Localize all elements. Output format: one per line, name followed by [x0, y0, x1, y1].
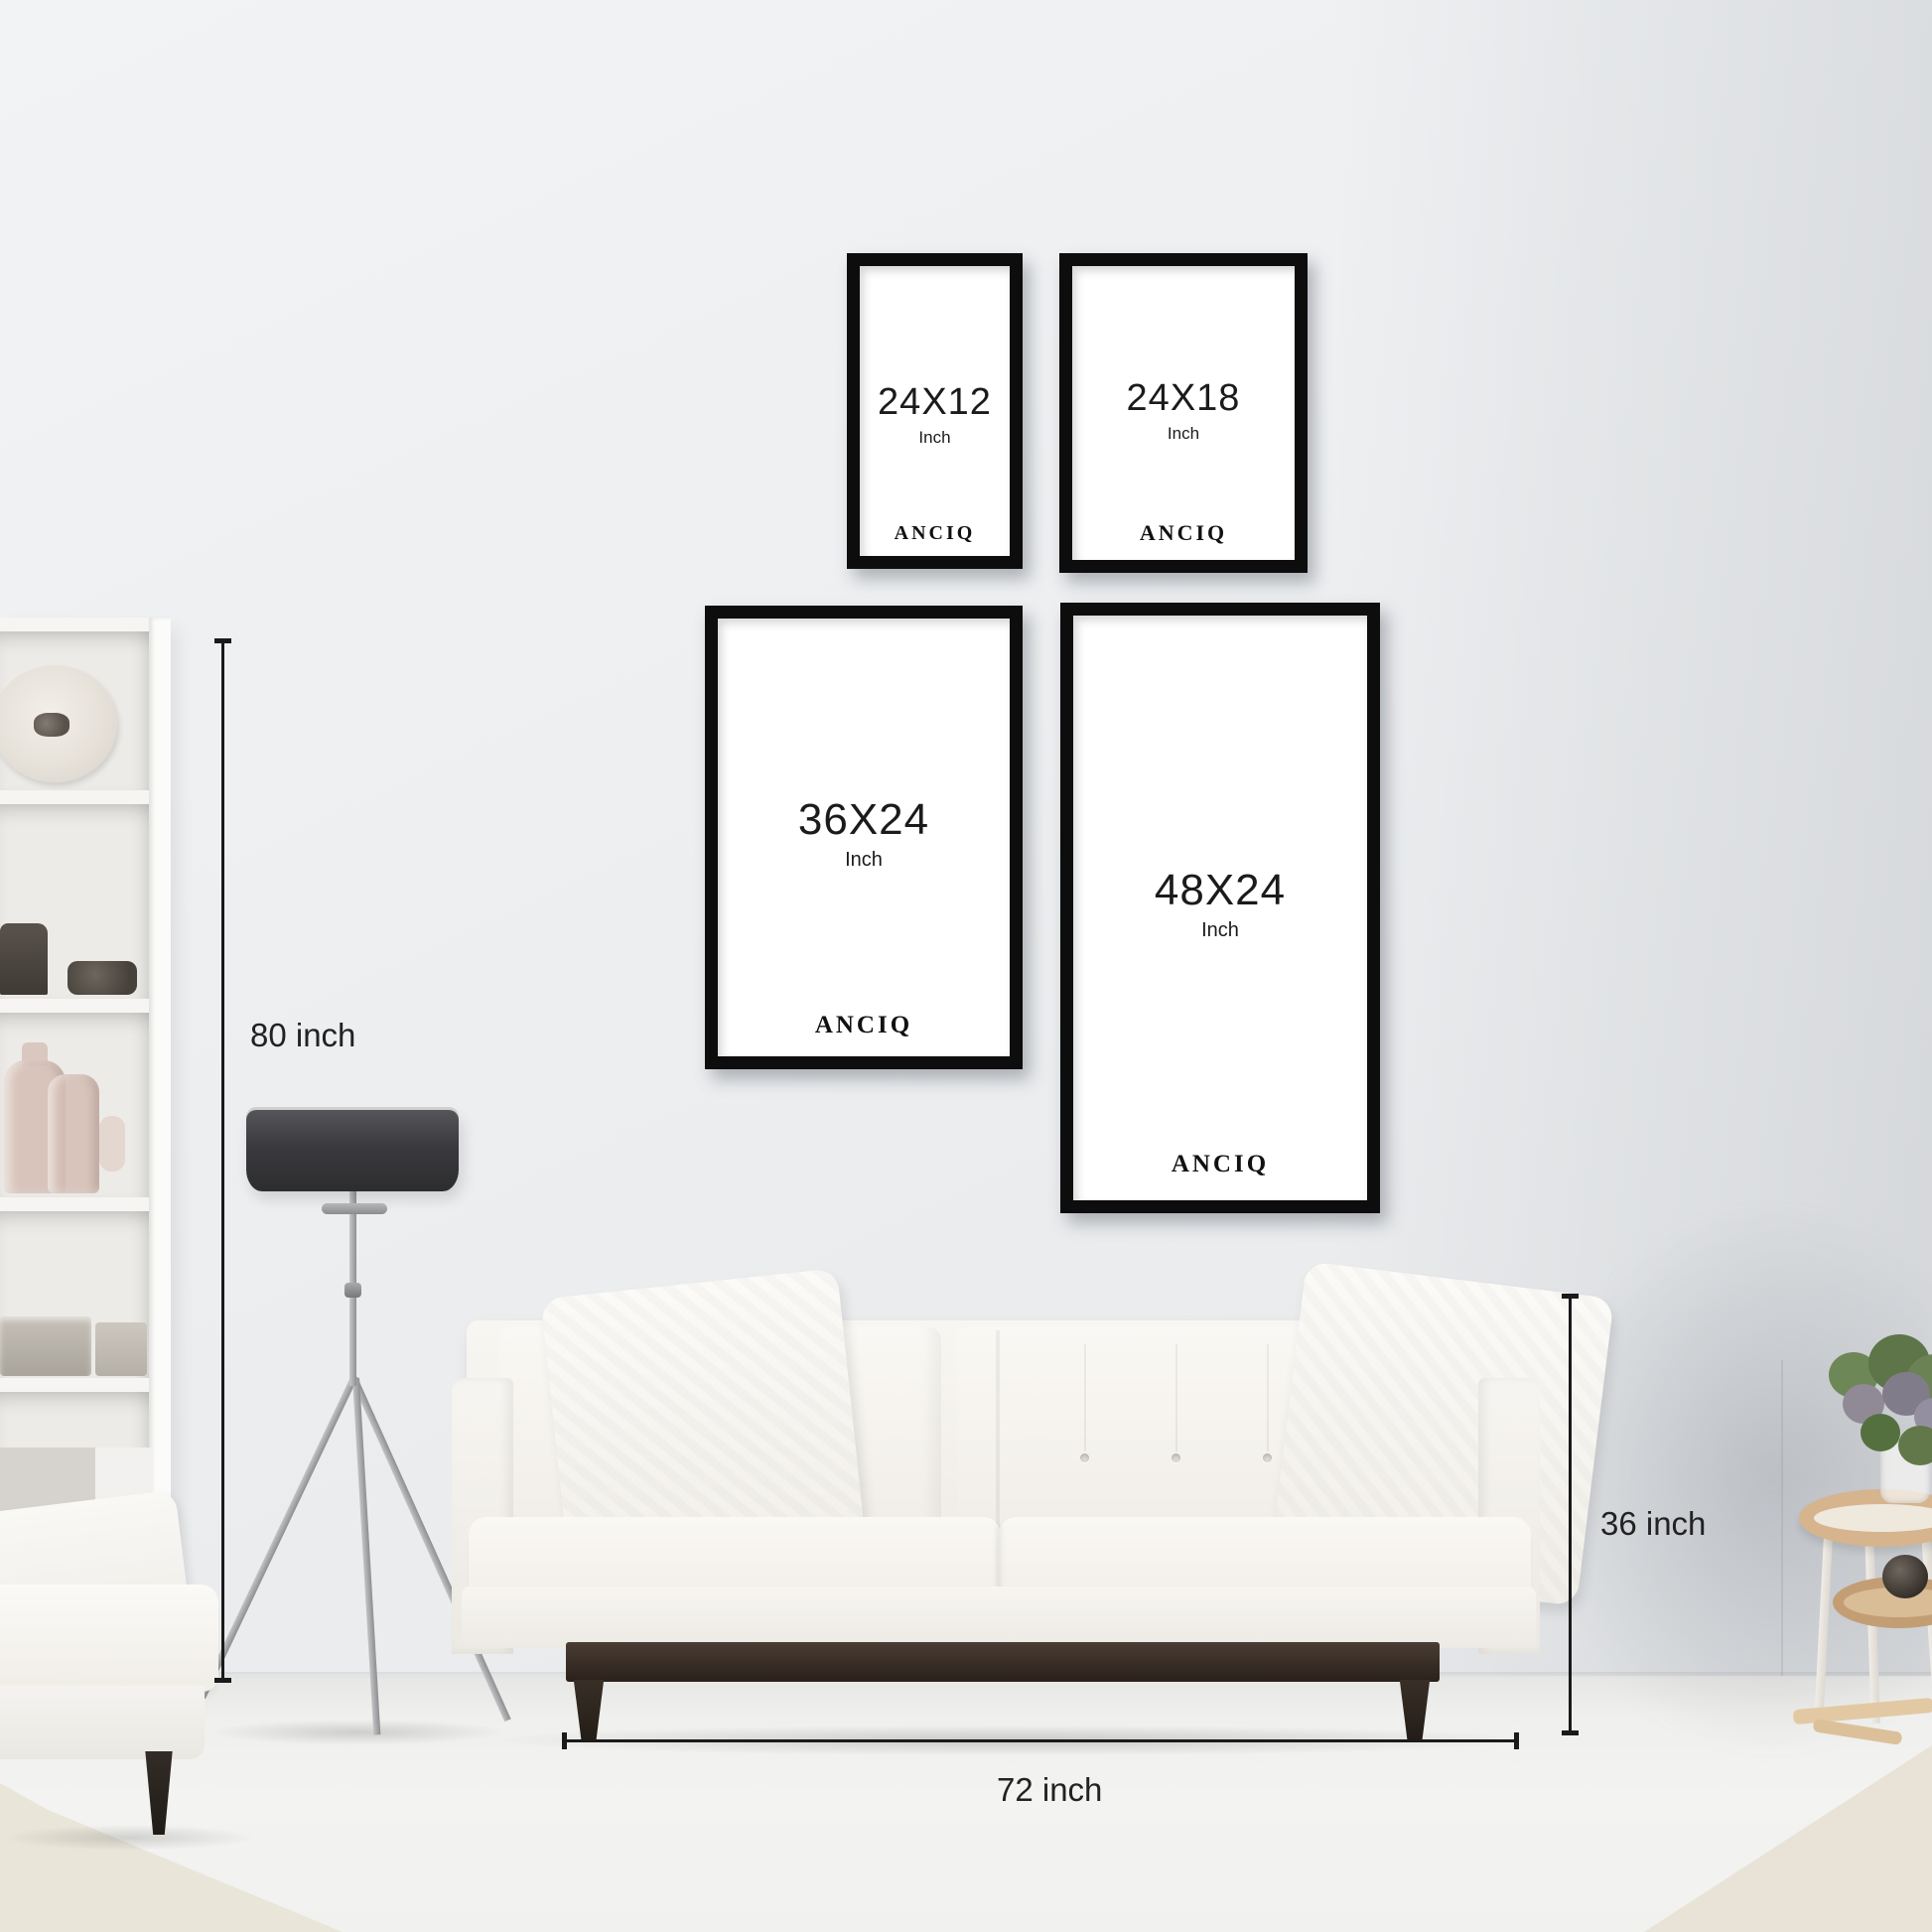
- measure-cap: [562, 1732, 567, 1749]
- bookshelf-compartment-1: [0, 631, 149, 790]
- brand-logo: ANCIQ: [1140, 520, 1227, 546]
- lamp-shade: [246, 1110, 459, 1191]
- measure-cap: [214, 638, 231, 643]
- measure-label-sofa-width: 72 inch: [997, 1771, 1102, 1809]
- frame-size-label: 48X24: [1155, 869, 1286, 912]
- sofa-front-rail: [462, 1587, 1536, 1648]
- measure-cap: [1514, 1732, 1519, 1749]
- brand-logo: ANCIQ: [895, 522, 976, 545]
- plant-leaf: [1861, 1414, 1900, 1451]
- dark-figurine: [0, 923, 48, 995]
- cushion-pleat: [1084, 1344, 1086, 1451]
- frame-size-label: 24X12: [878, 383, 992, 421]
- bookshelf-compartment-3: [0, 1013, 149, 1197]
- stone-cube: [95, 1322, 147, 1376]
- armchair-seat: [0, 1585, 218, 1692]
- decorative-sphere: [1882, 1555, 1928, 1598]
- frame-unit-label: Inch: [1201, 919, 1239, 942]
- small-figurines: [68, 961, 137, 995]
- plate-ornament: [34, 713, 69, 737]
- sofa-back-seam: [996, 1330, 1000, 1549]
- measure-line: [1569, 1296, 1572, 1732]
- tufting-button: [1080, 1453, 1089, 1462]
- frame-unit-label: Inch: [1168, 424, 1199, 444]
- measure-cap: [214, 1678, 231, 1683]
- sofa-wood-base: [566, 1642, 1440, 1682]
- measure-label-sofa-height: 36 inch: [1600, 1505, 1706, 1543]
- measure-cap: [1562, 1294, 1579, 1299]
- lamp-crossbar: [322, 1203, 387, 1214]
- brand-logo: ANCIQ: [1172, 1151, 1269, 1178]
- measure-cap: [1562, 1730, 1579, 1735]
- frame-48x24: 48X24 Inch ANCIQ: [1060, 603, 1380, 1213]
- frame-24x18: 24X18 Inch ANCIQ: [1059, 253, 1308, 573]
- tufting-button: [1263, 1453, 1272, 1462]
- lamp-knob: [345, 1283, 361, 1298]
- tufting-button: [1172, 1453, 1180, 1462]
- glass-bottle: [48, 1074, 99, 1193]
- measure-label-wall-height: 80 inch: [250, 1017, 355, 1054]
- frame-unit-label: Inch: [918, 428, 950, 448]
- frame-24x12: 24X12 Inch ANCIQ: [847, 253, 1023, 569]
- cushion-pleat: [1175, 1344, 1177, 1451]
- measure-line: [564, 1739, 1517, 1742]
- decorative-plate: [0, 665, 117, 782]
- cushion-pleat: [1267, 1344, 1269, 1451]
- storage-box: [0, 1316, 91, 1376]
- bookshelf-compartment-4: [0, 1211, 149, 1378]
- measure-line: [221, 640, 224, 1681]
- armchair-floor-shadow: [0, 1825, 258, 1851]
- frame-36x24: 36X24 Inch ANCIQ: [705, 606, 1023, 1069]
- bookshelf-compartment-2: [0, 804, 149, 999]
- brand-logo: ANCIQ: [815, 1012, 912, 1039]
- lamp-floor-shadow: [208, 1720, 506, 1745]
- room-scene: 24X12 Inch ANCIQ 24X18 Inch ANCIQ 36X24 …: [0, 0, 1932, 1932]
- frame-unit-label: Inch: [845, 849, 883, 872]
- armchair-skirt: [0, 1686, 205, 1759]
- glass-jar: [99, 1116, 125, 1172]
- frame-size-label: 36X24: [798, 798, 929, 842]
- frame-size-label: 24X18: [1127, 379, 1241, 417]
